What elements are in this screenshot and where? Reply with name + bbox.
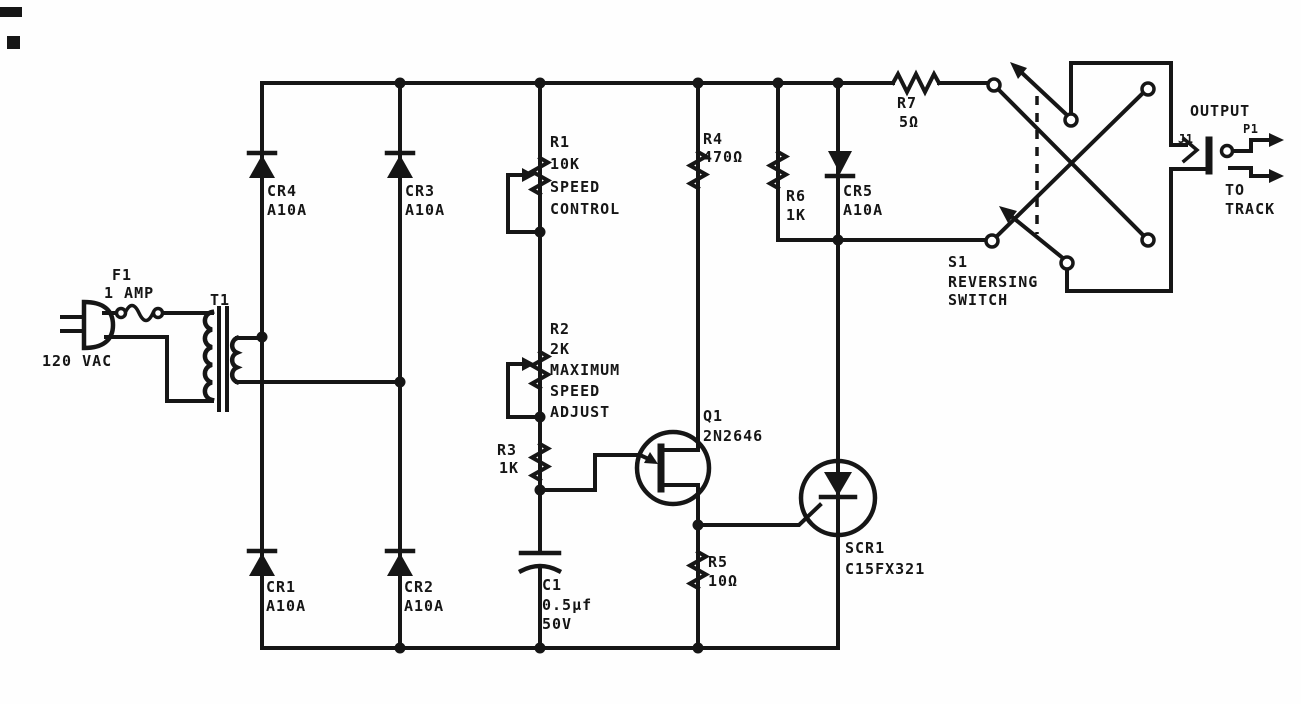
junction (395, 377, 406, 388)
plug-p1-lead-top (1233, 140, 1272, 151)
plug-p1-contact (1222, 146, 1233, 157)
junction (693, 520, 704, 531)
label-cr5-ref: CR5 (843, 182, 873, 200)
reversing-switch-s1 (986, 62, 1204, 291)
label-output-dest2: TRACK (1225, 200, 1275, 218)
diode-cr3 (387, 153, 413, 178)
label-cr1-ref: CR1 (266, 578, 296, 596)
label-q1-ref: Q1 (703, 407, 723, 425)
label-s1-note2: SWITCH (948, 291, 1008, 309)
plug-p1-lead-bottom (1230, 168, 1272, 176)
label-c1-ref: C1 (542, 576, 562, 594)
junction (773, 78, 784, 89)
component-symbols (84, 74, 939, 588)
schematic-canvas: F1 1 AMP 120 VAC T1 CR4 A10A CR3 A10A CR… (0, 0, 1301, 704)
switch-contact-f (1142, 234, 1154, 246)
label-r6-ref: R6 (786, 187, 806, 205)
junction (395, 643, 406, 654)
wire-plug-to-primary-bottom (106, 337, 212, 401)
diode-cr2 (387, 551, 413, 576)
label-q1-value: 2N2646 (703, 427, 763, 445)
output-connector (1184, 133, 1284, 183)
fuse-element (125, 306, 153, 321)
resistor-r7 (893, 74, 939, 92)
diode-cr1 (249, 551, 275, 576)
junction (693, 78, 704, 89)
label-cr5-value: A10A (843, 201, 883, 219)
label-r2-value: 2K (550, 340, 570, 358)
transformer-secondary-coil (232, 338, 237, 382)
label-r4-value: 470Ω (703, 148, 743, 166)
label-source: 120 VAC (42, 352, 112, 370)
junction (693, 643, 704, 654)
label-s1-note1: REVERSING (948, 273, 1038, 291)
junction (257, 332, 268, 343)
fuse-terminal-right (154, 309, 163, 318)
transformer-core (219, 308, 227, 410)
diode-cr4 (249, 153, 275, 178)
ac-plug-symbol (84, 302, 113, 348)
label-j1-ref: J1 (1178, 132, 1193, 146)
label-r2-note3: ADJUST (550, 403, 610, 421)
junction (833, 235, 844, 246)
label-cr3-value: A10A (405, 201, 445, 219)
label-cr3-ref: CR3 (405, 182, 435, 200)
label-r5-ref: R5 (708, 553, 728, 571)
switch-contact-c (1065, 114, 1077, 126)
junction (535, 643, 546, 654)
label-scr1-value: C15FX321 (845, 560, 925, 578)
label-r2-note1: MAXIMUM (550, 361, 620, 379)
label-r4-ref: R4 (703, 130, 723, 148)
scan-artifacts (0, 7, 22, 49)
junction (535, 78, 546, 89)
label-f1-ref: F1 (112, 266, 132, 284)
output-arrow-top (1269, 133, 1284, 147)
scan-artifact (0, 7, 22, 17)
junction (833, 78, 844, 89)
junction (395, 78, 406, 89)
label-c1-value: 0.5µf (542, 596, 592, 614)
label-cr1-value: A10A (266, 597, 306, 615)
label-r1-note2: CONTROL (550, 200, 620, 218)
switch-pole-b (986, 235, 998, 247)
switch-contact-e (1142, 83, 1154, 95)
label-c1-rating: 50V (542, 615, 572, 633)
switch-contact-d (1061, 257, 1073, 269)
label-r2-ref: R2 (550, 320, 570, 338)
output-arrow-bottom (1269, 169, 1284, 183)
label-cr4-ref: CR4 (267, 182, 297, 200)
wire-r1-wiper-link (508, 175, 538, 232)
label-cr4-value: A10A (267, 201, 307, 219)
label-t1-ref: T1 (210, 291, 230, 309)
label-r3-ref: R3 (497, 441, 517, 459)
label-r1-value: 10K (550, 155, 580, 173)
label-r1-ref: R1 (550, 133, 570, 151)
label-r5-value: 10Ω (708, 572, 738, 590)
wire-switch-to-jack-top (1071, 63, 1186, 145)
label-cr2-ref: CR2 (404, 578, 434, 596)
label-scr1-ref: SCR1 (845, 539, 885, 557)
diode-cr5 (827, 151, 853, 176)
fuse-terminal-left (117, 309, 126, 318)
switch-pole-a (988, 79, 1000, 91)
junction (535, 485, 546, 496)
label-s1-ref: S1 (948, 253, 968, 271)
label-output-dest1: TO (1225, 181, 1245, 199)
label-r7-ref: R7 (897, 94, 917, 112)
label-r7-value: 5Ω (899, 113, 919, 131)
label-cr2-value: A10A (404, 597, 444, 615)
label-r2-note2: SPEED (550, 382, 600, 400)
label-output: OUTPUT (1190, 102, 1250, 120)
label-f1-value: 1 AMP (104, 284, 154, 302)
label-p1-ref: P1 (1243, 122, 1258, 136)
scan-artifact (7, 36, 20, 49)
label-r6-value: 1K (786, 206, 806, 224)
junction (535, 412, 546, 423)
r2-wiper-arrow (522, 357, 535, 371)
junction (535, 227, 546, 238)
transistor-q1 (637, 432, 709, 504)
label-r3-value: 1K (499, 459, 519, 477)
switch-blade-top (1021, 72, 1068, 116)
wire-r2-wiper-link (508, 364, 538, 417)
schematic-page: F1 1 AMP 120 VAC T1 CR4 A10A CR3 A10A CR… (0, 0, 1301, 704)
label-r1-note1: SPEED (550, 178, 600, 196)
transformer-primary-coil (205, 312, 212, 400)
